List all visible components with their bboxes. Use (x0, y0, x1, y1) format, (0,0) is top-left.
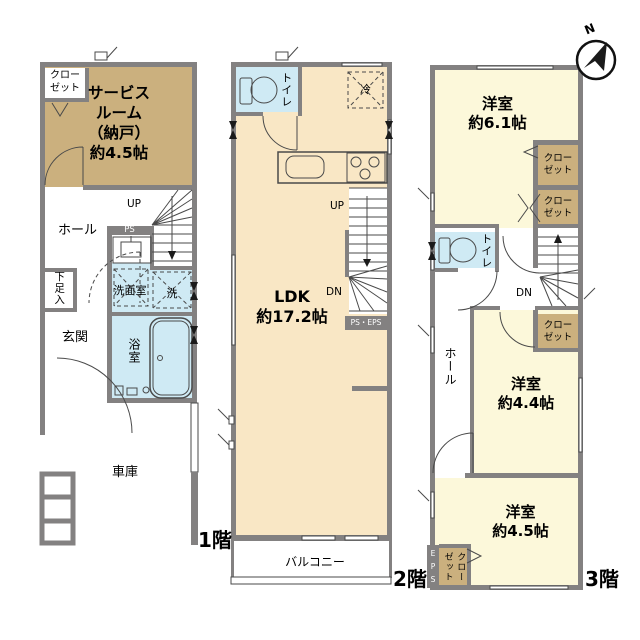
f3-closet1-label: クロー ゼット (538, 153, 578, 177)
f1-hall-label: ホール (58, 223, 97, 239)
f3-floor-label: 3階 (585, 567, 619, 592)
f1-garage-label: 車庫 (112, 465, 138, 481)
f3-closet4-label: クロー ゼット (441, 550, 466, 584)
f2-floor-label: 2階 (393, 567, 427, 592)
f3-toilet-label: トイレ (479, 233, 493, 269)
f3-bedroom1-label: 洋室 約6.1帖 (445, 95, 550, 134)
f1-washroom-label: 洗面室 (109, 284, 151, 298)
f1-service-room-label: サービス ルーム （納戸） 約4.5帖 (58, 83, 180, 164)
f2-toilet-label: トイレ (279, 72, 293, 108)
f1-bathroom-label: 浴室 (126, 338, 141, 364)
f3-bedroom3-label: 洋室 約4.5帖 (468, 503, 573, 541)
f3-eps-label: E P S (427, 547, 439, 586)
f2-fridge-label: 冷 (348, 83, 383, 97)
f1-floor-label: 1階 (198, 528, 232, 553)
f1-entrance-label: 玄関 (62, 330, 88, 346)
f2-ldk-label: LDK 約17.2帖 (247, 287, 337, 327)
f3-closet2-label: クロー ゼット (538, 196, 578, 220)
f2-dn-label: DN (326, 286, 342, 299)
f3-dn-label: DN (516, 287, 532, 300)
f2-ps-eps-label: PS・EPS (345, 318, 387, 327)
floor1-garage-gate-icon (42, 474, 73, 543)
f3-bedroom2-label: 洋室 約4.4帖 (476, 375, 576, 413)
f3-closet3-label: クロー ゼット (538, 320, 578, 344)
f1-washer-label: 洗 (156, 287, 188, 301)
f3-hall-label: ホール (442, 347, 457, 386)
f1-shoe-box-label: 下足入 (52, 271, 65, 306)
f1-ps-label: PS (107, 225, 152, 236)
f2-balcony-label: バルコニー (270, 555, 360, 570)
f2-up-label: UP (330, 200, 344, 213)
f1-up-label: UP (127, 198, 141, 211)
floorplan-canvas: クロー ゼット サービス ルーム （納戸） 約4.5帖 UP ホール PS 洗面… (0, 0, 640, 640)
compass-icon (577, 41, 615, 79)
